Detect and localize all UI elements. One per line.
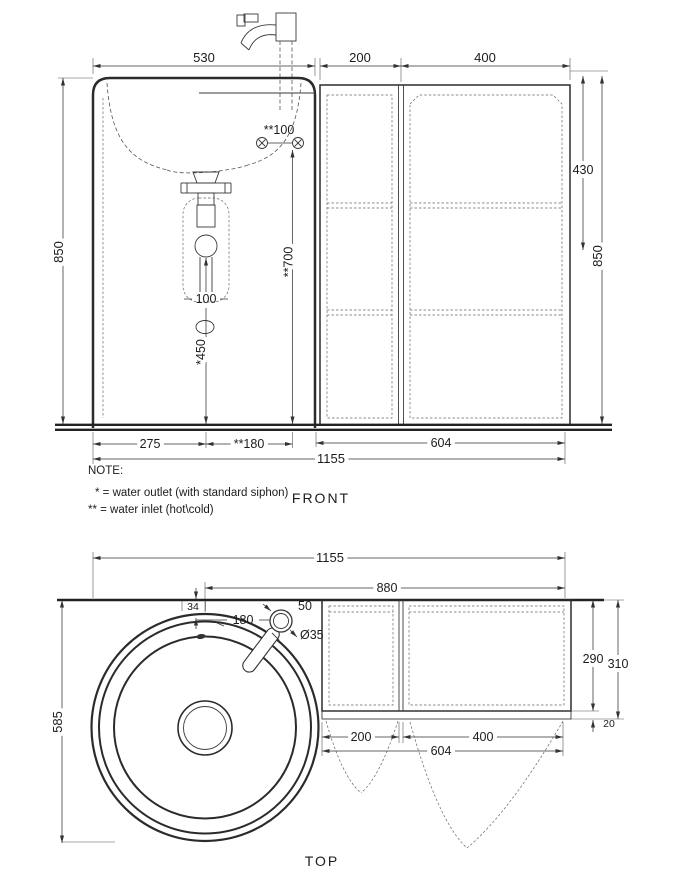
- front-bottom-dims: 275 **180 604 1155: [93, 432, 565, 466]
- basin-top: [92, 614, 319, 841]
- dim-height-right: 850: [570, 71, 608, 424]
- dim-faucet-size-label: 50: [298, 599, 312, 613]
- dim-cabinet-depth-label: 290: [583, 652, 604, 666]
- dim-cabinet-left-width: 200: [320, 50, 401, 82]
- dim-faucet-offset-label: 180: [233, 613, 254, 627]
- dim-cabinet-width-front: 604: [316, 436, 565, 450]
- dim-total-width-top-label: 1155: [316, 550, 344, 565]
- dim-total-width-top: 1155: [93, 550, 565, 598]
- dim-outlet-height: *450: [194, 258, 208, 424]
- cabinet-front: [320, 85, 570, 425]
- dim-basin-depth: 585: [50, 600, 115, 843]
- top-view-label: TOP: [305, 853, 340, 869]
- dim-inlet-from-drain: **180: [206, 437, 293, 451]
- top-bottom-dims: 200 400 604: [322, 722, 563, 758]
- dim-door-right: 400: [403, 730, 563, 744]
- note-block: NOTE: * = water outlet (with standard si…: [88, 465, 289, 516]
- note-line-inlet: ** = water inlet (hot\cold): [88, 504, 214, 516]
- dim-sink-width-label: 530: [193, 50, 215, 65]
- dim-shelf-height: 430: [573, 76, 594, 250]
- drain-top: [178, 701, 232, 755]
- dim-cabinet-right-width-label: 400: [474, 50, 496, 65]
- dim-inlet-height-label: **700: [282, 247, 296, 278]
- door-swing-right: [410, 722, 467, 848]
- dim-center-to-right: 880: [205, 581, 565, 612]
- dim-height-left-label: 850: [51, 241, 66, 263]
- dim-shelf-height-label: 430: [573, 163, 594, 177]
- front-view: 530 200 400: [51, 13, 612, 516]
- floor-line: [55, 425, 612, 430]
- overflow-mark: [196, 633, 206, 639]
- dim-total-width-front-label: 1155: [317, 451, 345, 466]
- dim-height-right-label: 850: [590, 245, 605, 267]
- dim-faucet-base-label: Ø35: [300, 628, 324, 642]
- note-line-outlet: * = water outlet (with standard siphon): [95, 487, 289, 499]
- dim-total-depth-label: 310: [608, 657, 629, 671]
- dim-cabinet-depth: 290 310 20: [571, 600, 628, 732]
- dim-drain-width: 100: [184, 292, 228, 306]
- technical-drawing-page: 530 200 400: [0, 0, 685, 880]
- dim-cabinet-width-front-label: 604: [431, 436, 452, 450]
- dim-drain-from-left: 275: [93, 437, 206, 451]
- cabinet-top: [322, 600, 571, 848]
- note-title: NOTE:: [88, 465, 123, 477]
- dim-cabinet-width-top-label: 604: [431, 744, 452, 758]
- dim-door-thickness-label: 20: [603, 718, 615, 730]
- dim-door-right-label: 400: [473, 730, 494, 744]
- dim-basin-depth-label: 585: [50, 711, 65, 733]
- dim-inlet-height: **700: [282, 150, 296, 424]
- dim-sink-width: 530: [93, 50, 315, 76]
- dim-inlet-from-drain-label: **180: [234, 437, 265, 451]
- dim-outlet-height-label: *450: [194, 339, 208, 365]
- dim-cabinet-left-width-label: 200: [349, 50, 371, 65]
- dim-cabinet-right-width: 400: [401, 50, 570, 80]
- dim-total-width-front: 1155: [93, 451, 565, 466]
- dim-inlet-spacing-label: **100: [264, 123, 295, 137]
- faucet-front-icon: [237, 13, 296, 112]
- dim-drain-width-label: 100: [196, 292, 217, 306]
- front-view-label: FRONT: [292, 490, 350, 506]
- faucet-lever: [240, 625, 282, 674]
- dim-door-left-label: 200: [351, 730, 372, 744]
- dim-cabinet-width-top: 604: [322, 744, 563, 758]
- technical-drawing: 530 200 400: [0, 0, 685, 880]
- dim-height-left: 850: [51, 78, 93, 424]
- dim-rim-offset-label: 34: [187, 601, 199, 613]
- top-view: 1155 880 585: [50, 550, 628, 869]
- dim-door-left: 200: [322, 730, 399, 744]
- dim-center-to-right-label: 880: [377, 581, 398, 595]
- dim-drain-from-left-label: 275: [140, 437, 161, 451]
- cabinet-door-front: [322, 711, 571, 719]
- water-inlet-symbols: **100: [257, 123, 304, 149]
